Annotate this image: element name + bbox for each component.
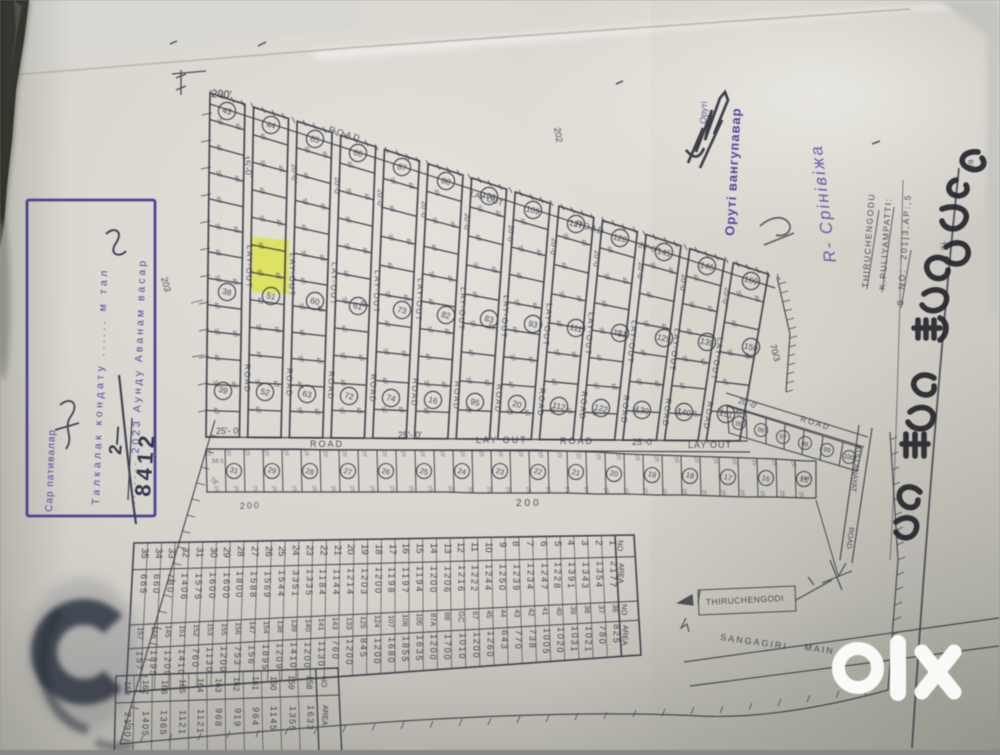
svg-text:105: 105 xyxy=(415,613,424,626)
svg-text:41: 41 xyxy=(541,607,550,616)
svg-text:160: 160 xyxy=(268,676,278,691)
svg-text:1406: 1406 xyxy=(179,573,190,601)
svg-text:42: 42 xyxy=(527,608,536,617)
svg-text:LAY-OUT: LAY-OUT xyxy=(244,245,254,289)
svg-text:87A: 87A xyxy=(429,613,438,627)
svg-text:1410: 1410 xyxy=(288,642,299,670)
svg-text:20′-0″: 20′-0″ xyxy=(332,177,342,197)
svg-text:106: 106 xyxy=(401,614,410,627)
svg-text:1575: 1575 xyxy=(193,573,204,601)
svg-text:200: 200 xyxy=(516,498,542,509)
svg-text:1222: 1222 xyxy=(469,565,480,593)
svg-text:1228: 1228 xyxy=(552,562,563,590)
svg-text:1244: 1244 xyxy=(483,564,494,592)
svg-text:8: 8 xyxy=(510,541,521,547)
svg-text:34: 34 xyxy=(153,548,164,559)
svg-text:43: 43 xyxy=(513,609,522,618)
svg-text:20′-0″: 20′-0″ xyxy=(290,164,299,184)
svg-text:1200: 1200 xyxy=(302,642,313,670)
svg-text:167: 167 xyxy=(140,680,150,695)
svg-text:1206: 1206 xyxy=(442,566,453,594)
svg-text:26: 26 xyxy=(263,546,274,557)
svg-text:ROAD: ROAD xyxy=(284,368,294,397)
svg-text:6: 6 xyxy=(538,541,549,547)
svg-text:1700: 1700 xyxy=(442,634,453,662)
svg-text:44: 44 xyxy=(499,609,508,618)
svg-text:2—: 2— xyxy=(105,426,127,455)
svg-text:825: 825 xyxy=(611,624,622,645)
svg-text:1031: 1031 xyxy=(569,626,580,654)
svg-text:17: 17 xyxy=(387,544,398,555)
svg-text:ROAD: ROAD xyxy=(242,364,252,393)
svg-text:1021: 1021 xyxy=(583,626,594,654)
svg-text:165: 165 xyxy=(177,679,187,694)
svg-text:158: 158 xyxy=(304,675,314,690)
svg-text:29: 29 xyxy=(221,547,232,558)
svg-text:968: 968 xyxy=(213,708,224,728)
svg-text:1020: 1020 xyxy=(555,627,566,655)
svg-text:35: 35 xyxy=(139,548,150,559)
svg-text:665: 665 xyxy=(138,574,149,595)
svg-text:964: 964 xyxy=(250,707,261,727)
svg-text:1355: 1355 xyxy=(287,706,298,732)
svg-text:3: 3 xyxy=(579,540,590,546)
svg-text:7: 7 xyxy=(524,541,535,547)
svg-text:145: 145 xyxy=(164,625,173,638)
svg-text:139: 139 xyxy=(290,619,299,632)
svg-text:ROAD: ROAD xyxy=(310,439,344,449)
svg-text:LAY′OUT: LAY′OUT xyxy=(688,440,732,450)
svg-text:780: 780 xyxy=(165,573,176,594)
svg-text:4: 4 xyxy=(565,540,576,546)
svg-text:1200: 1200 xyxy=(344,639,355,667)
svg-text:154: 154 xyxy=(262,621,271,634)
svg-text:1: 1 xyxy=(607,540,618,546)
svg-text:AREA: AREA xyxy=(320,705,330,726)
svg-text:1184: 1184 xyxy=(317,569,328,597)
svg-text:1354: 1354 xyxy=(594,561,605,589)
svg-text:30: 30 xyxy=(208,547,219,558)
svg-text:40: 40 xyxy=(555,607,564,616)
svg-text:1200: 1200 xyxy=(373,567,384,595)
svg-text:1203: 1203 xyxy=(359,568,370,596)
svg-text:156: 156 xyxy=(150,626,159,639)
svg-text:5: 5 xyxy=(552,541,563,547)
svg-text:1005: 1005 xyxy=(541,628,552,656)
svg-text:1680: 1680 xyxy=(386,637,397,665)
svg-text:ROAD: ROAD xyxy=(560,436,594,446)
svg-text:36: 36 xyxy=(611,604,620,613)
svg-text:20′-0″: 20′-0″ xyxy=(375,189,385,209)
svg-text:1214: 1214 xyxy=(345,568,356,596)
svg-text:1800: 1800 xyxy=(234,571,245,599)
svg-text:12: 12 xyxy=(455,542,466,553)
svg-text:31: 31 xyxy=(194,547,205,558)
svg-text:643: 643 xyxy=(499,630,510,651)
svg-text:39: 39 xyxy=(569,606,578,615)
svg-text:133: 133 xyxy=(345,617,354,630)
svg-text:37: 37 xyxy=(597,605,606,614)
svg-text:156: 156 xyxy=(234,622,243,635)
svg-text:8412: 8412 xyxy=(130,431,159,498)
svg-text:1130: 1130 xyxy=(316,641,327,668)
svg-text:760: 760 xyxy=(190,648,201,669)
svg-text:25′- 0′: 25′- 0′ xyxy=(398,430,422,440)
svg-text:LAY-OUT: LAY-OUT xyxy=(287,253,297,297)
svg-text:770: 770 xyxy=(513,630,524,651)
svg-text:20′-0″: 20′-0″ xyxy=(591,250,602,270)
svg-text:ROAD: ROAD xyxy=(368,374,378,403)
svg-text:1335: 1335 xyxy=(304,569,315,597)
svg-text:151: 151 xyxy=(178,625,187,638)
svg-text:88: 88 xyxy=(443,612,452,621)
svg-text:1239: 1239 xyxy=(511,564,522,592)
svg-text:1121: 1121 xyxy=(177,710,188,736)
svg-text:1194: 1194 xyxy=(414,566,425,594)
svg-text:107: 107 xyxy=(387,615,396,628)
svg-text:1588: 1588 xyxy=(248,571,259,599)
svg-text:38: 38 xyxy=(583,605,592,614)
svg-text:1200: 1200 xyxy=(471,632,482,660)
svg-text:166: 166 xyxy=(159,680,169,695)
svg-text:660: 660 xyxy=(151,574,162,595)
svg-text:32: 32 xyxy=(180,547,191,558)
svg-text:20′-0″: 20′-0″ xyxy=(548,238,559,258)
svg-text:2177: 2177 xyxy=(608,561,619,589)
svg-text:138: 138 xyxy=(276,620,285,633)
svg-text:200: 200 xyxy=(240,500,262,511)
svg-text:10: 10 xyxy=(483,542,494,553)
svg-text:21: 21 xyxy=(332,545,343,556)
svg-text:LAY OUT: LAY OUT xyxy=(476,435,528,445)
svg-text:153: 153 xyxy=(206,623,215,636)
svg-text:1544: 1544 xyxy=(276,570,287,598)
svg-text:738: 738 xyxy=(527,629,538,650)
svg-text:753: 753 xyxy=(232,646,243,667)
svg-text:1391: 1391 xyxy=(566,562,577,590)
svg-text:1633: 1633 xyxy=(305,705,316,731)
svg-text:125: 125 xyxy=(359,616,368,629)
svg-text:1260: 1260 xyxy=(485,631,496,659)
svg-text:1600: 1600 xyxy=(221,572,232,600)
svg-text:ROAD: ROAD xyxy=(326,371,336,400)
svg-text:GC: GC xyxy=(457,611,466,623)
svg-text:1010: 1010 xyxy=(457,633,468,661)
svg-text:141: 141 xyxy=(317,618,326,631)
svg-text:1130: 1130 xyxy=(204,647,215,674)
svg-text:1209: 1209 xyxy=(274,643,285,671)
svg-text:155: 155 xyxy=(220,623,229,636)
svg-text:1200: 1200 xyxy=(218,646,229,674)
svg-text:1234: 1234 xyxy=(525,563,536,591)
svg-text:1895: 1895 xyxy=(260,644,271,672)
svg-text:11: 11 xyxy=(469,542,480,552)
svg-text:1600: 1600 xyxy=(207,572,218,600)
svg-text:22: 22 xyxy=(318,545,329,556)
svg-text:1216: 1216 xyxy=(456,565,467,593)
svg-text:1144: 1144 xyxy=(331,569,342,597)
svg-text:56:5: 56:5 xyxy=(212,459,224,465)
svg-text:156: 156 xyxy=(246,645,257,666)
svg-text:18: 18 xyxy=(373,544,384,555)
svg-text:760: 760 xyxy=(330,640,341,661)
svg-text:25′- 0′: 25′- 0′ xyxy=(216,426,240,436)
svg-text:1145: 1145 xyxy=(268,706,279,732)
svg-text:LAY-OUT: LAY-OUT xyxy=(371,270,382,314)
svg-text:ROAD: ROAD xyxy=(409,378,420,408)
svg-text:2190: 2190 xyxy=(122,712,133,738)
svg-text:1343: 1343 xyxy=(580,562,591,590)
svg-text:162: 162 xyxy=(231,677,241,692)
svg-text:161: 161 xyxy=(250,676,260,691)
svg-text:15: 15 xyxy=(414,543,425,554)
svg-text:2: 2 xyxy=(593,540,604,546)
svg-text:45: 45 xyxy=(485,610,494,619)
svg-text:1198: 1198 xyxy=(386,567,397,595)
svg-text:1197: 1197 xyxy=(400,567,411,595)
svg-text:25′-0′: 25′-0′ xyxy=(632,437,654,447)
svg-text:ROAD: ROAD xyxy=(451,381,462,411)
svg-text:1410: 1410 xyxy=(176,649,187,677)
svg-text:1200: 1200 xyxy=(428,566,439,594)
svg-text:24: 24 xyxy=(290,545,301,556)
svg-text:3351: 3351 xyxy=(290,570,301,598)
svg-text:LAY-OUT: LAY-OUT xyxy=(328,262,339,306)
svg-text:25: 25 xyxy=(276,546,287,557)
svg-text:152: 152 xyxy=(192,624,201,637)
svg-text:1200: 1200 xyxy=(428,634,439,662)
svg-text:23: 23 xyxy=(304,545,315,556)
svg-text:780: 780 xyxy=(597,625,608,646)
svg-text:20′-0″: 20′-0″ xyxy=(462,213,472,233)
svg-text:33: 33 xyxy=(166,548,177,559)
svg-text:67: 67 xyxy=(471,611,480,620)
svg-text:1855: 1855 xyxy=(400,636,411,664)
svg-text:27: 27 xyxy=(249,546,260,557)
svg-text:20′-0″: 20′-0″ xyxy=(419,201,429,221)
svg-text:484′: 484′ xyxy=(800,476,812,482)
svg-text:919: 919 xyxy=(232,708,243,728)
svg-text:19: 19 xyxy=(359,544,370,555)
svg-text:16: 16 xyxy=(400,543,411,554)
svg-text:140: 140 xyxy=(304,619,313,632)
svg-text:9: 9 xyxy=(497,542,508,548)
svg-text:NO: NO xyxy=(320,676,329,688)
svg-text:1250: 1250 xyxy=(497,564,508,592)
svg-text:20: 20 xyxy=(345,544,356,555)
svg-text:1635: 1635 xyxy=(414,635,425,663)
svg-text:164: 164 xyxy=(195,678,205,693)
svg-text:845: 845 xyxy=(358,638,369,659)
svg-text:147: 147 xyxy=(248,621,257,634)
svg-text:1247: 1247 xyxy=(539,563,550,591)
svg-text:163: 163 xyxy=(213,678,223,693)
svg-text:124: 124 xyxy=(373,615,382,628)
svg-text:14: 14 xyxy=(428,543,439,554)
svg-text:13: 13 xyxy=(442,543,453,554)
svg-text:1895: 1895 xyxy=(148,650,159,678)
svg-text:1405: 1405 xyxy=(140,711,151,737)
svg-text:NO: NO xyxy=(620,604,629,616)
svg-text:1121: 1121 xyxy=(195,709,206,735)
svg-text:1365: 1365 xyxy=(158,710,169,736)
svg-text:1200: 1200 xyxy=(372,638,383,666)
svg-text:159: 159 xyxy=(286,675,296,690)
svg-text:28: 28 xyxy=(235,546,246,557)
svg-text:20′-0″: 20′-0″ xyxy=(506,225,516,245)
svg-text:143: 143 xyxy=(331,617,340,630)
svg-text:1569: 1569 xyxy=(262,571,273,599)
